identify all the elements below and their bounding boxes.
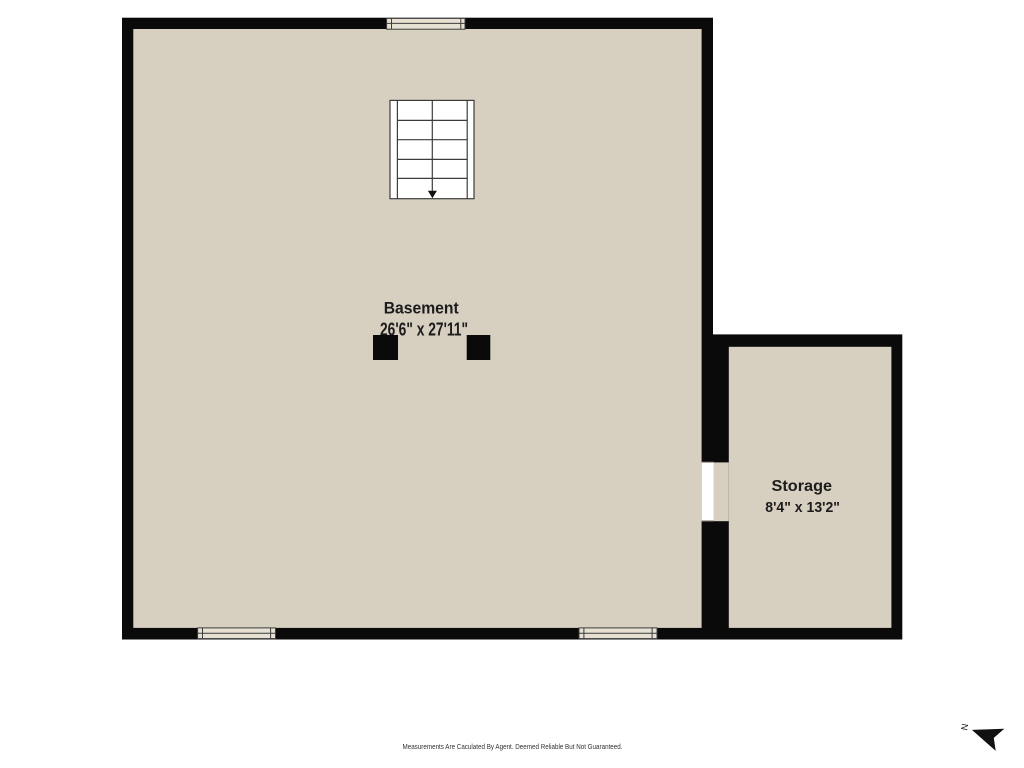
svg-text:Basement: Basement [384,299,459,318]
svg-text:Measurements Are Caculated By: Measurements Are Caculated By Agent. Dee… [403,742,623,751]
svg-text:Storage: Storage [772,478,833,495]
svg-text:8'4" x 13'2": 8'4" x 13'2" [765,499,840,516]
svg-text:N: N [959,723,970,731]
